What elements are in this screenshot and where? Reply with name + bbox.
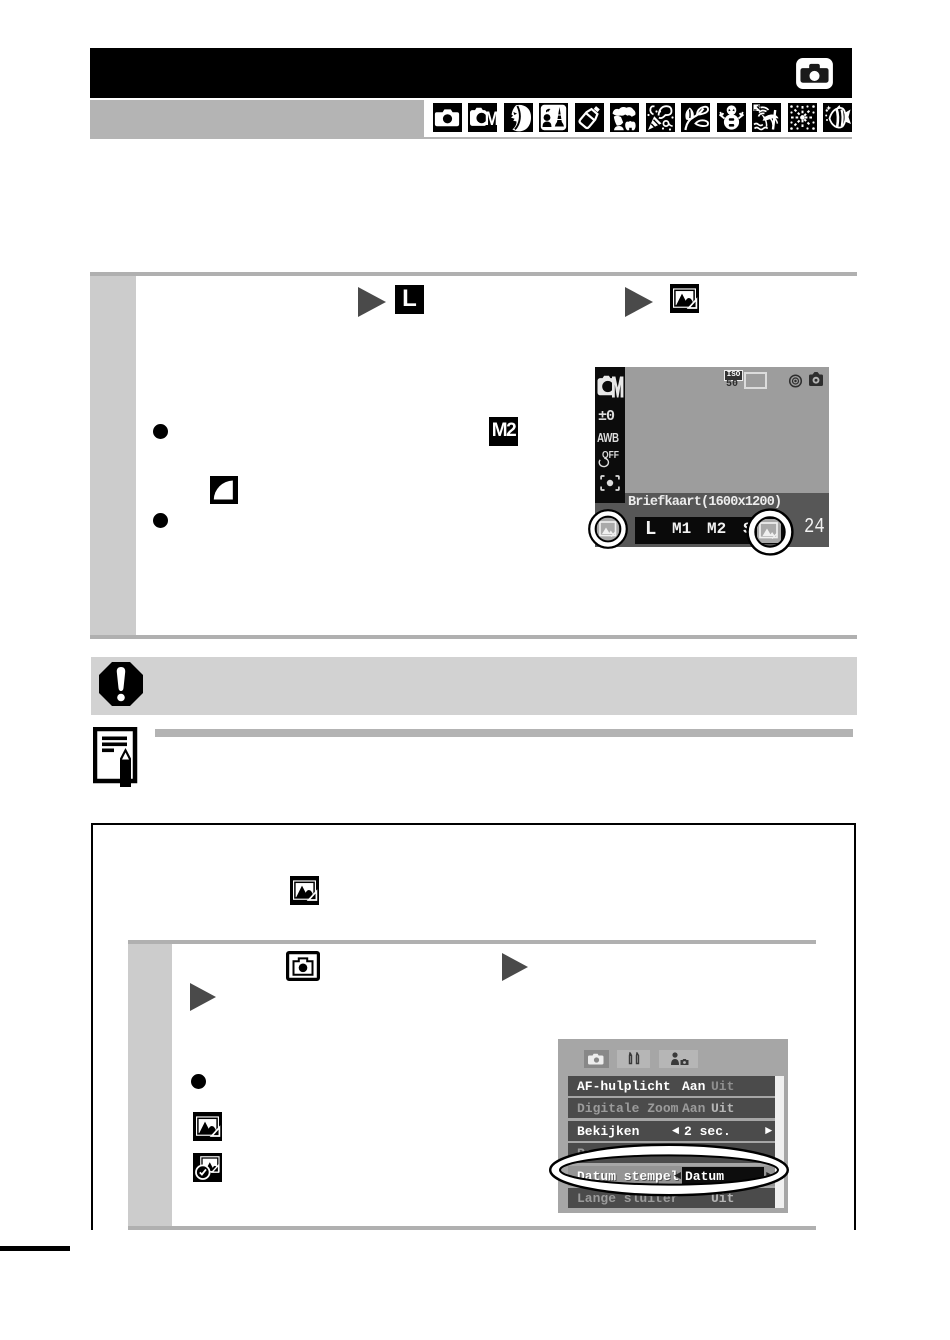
svg-text:M: M: [485, 107, 497, 129]
